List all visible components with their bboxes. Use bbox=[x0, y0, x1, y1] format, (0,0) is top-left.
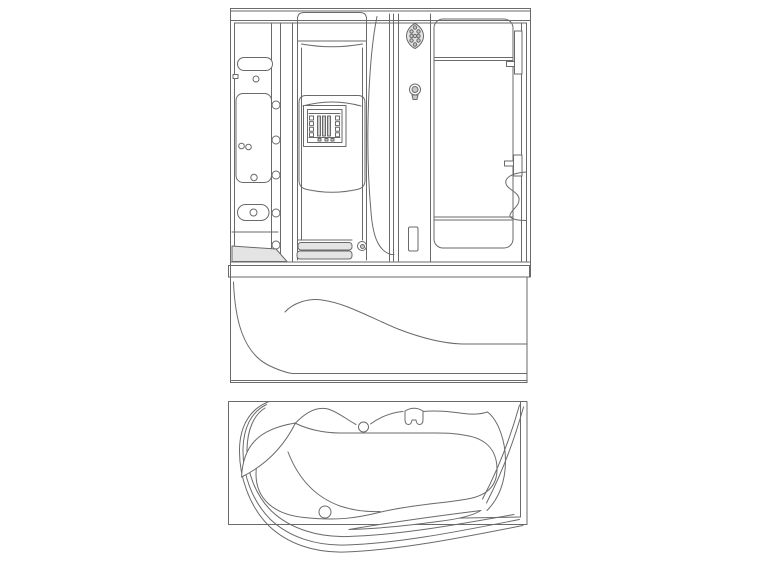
control-column bbox=[297, 13, 367, 261]
diverter-knob bbox=[410, 84, 421, 100]
back-panel bbox=[236, 94, 272, 183]
apron-corner-sweep bbox=[234, 282, 528, 374]
front-elevation-view bbox=[229, 9, 531, 383]
jet-circle bbox=[272, 101, 280, 109]
cabin-frame bbox=[229, 9, 531, 383]
jet-circle bbox=[251, 174, 257, 180]
cad-drawing bbox=[0, 0, 768, 576]
column-base-slats bbox=[297, 240, 352, 259]
drain-circle bbox=[319, 506, 331, 518]
rim-top-details bbox=[296, 408, 488, 432]
cad-canvas bbox=[0, 0, 768, 576]
apron-wave-curve bbox=[285, 300, 527, 344]
door-edge-curve bbox=[368, 17, 394, 255]
faucet bbox=[405, 408, 423, 424]
jet-circle bbox=[272, 209, 280, 217]
right-compartment bbox=[407, 14, 527, 262]
door-handle bbox=[409, 227, 419, 251]
jet-circle bbox=[250, 209, 257, 216]
jet-circle bbox=[246, 144, 252, 150]
towel-slot bbox=[238, 58, 273, 71]
jet-circle bbox=[272, 241, 280, 249]
jet-circle bbox=[272, 136, 280, 144]
shower-door bbox=[358, 14, 399, 261]
tub-basin bbox=[256, 424, 497, 519]
tub-apron bbox=[231, 277, 528, 383]
jet-circle bbox=[253, 76, 259, 82]
left-jet-panel bbox=[232, 23, 293, 262]
plan-view bbox=[229, 402, 528, 553]
jet-column bbox=[272, 101, 280, 249]
control-keypad bbox=[304, 106, 347, 147]
glass-panel bbox=[434, 19, 513, 248]
corner-spout-profile bbox=[506, 172, 527, 221]
jet-circle bbox=[359, 422, 369, 432]
body-jet bbox=[407, 24, 424, 49]
jet-circle bbox=[272, 171, 280, 179]
jet-circle bbox=[239, 143, 245, 149]
